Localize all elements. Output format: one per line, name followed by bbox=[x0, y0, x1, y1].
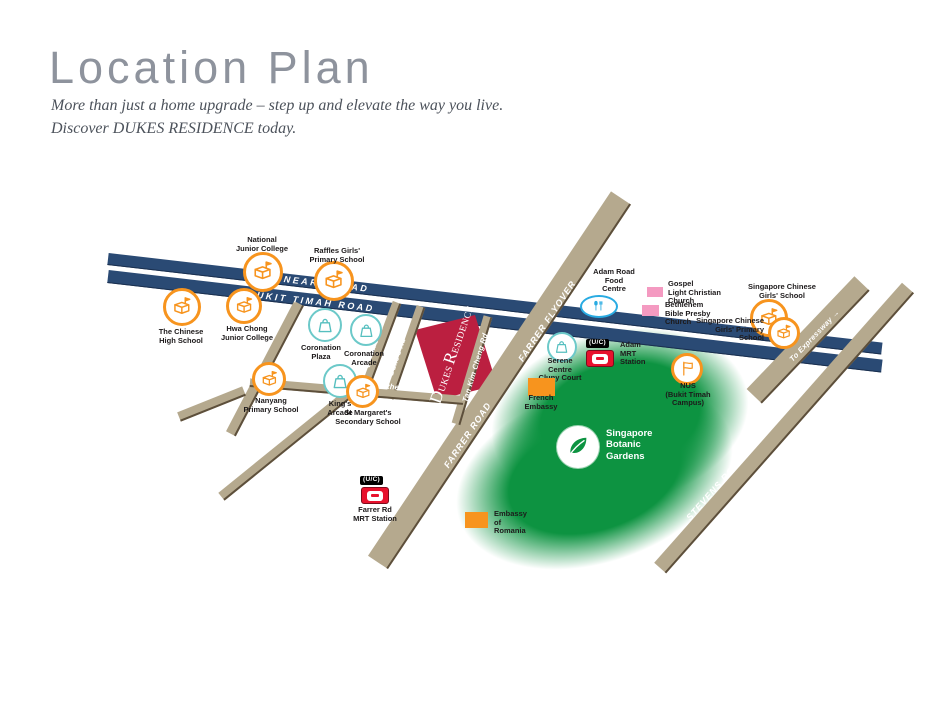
poi-label: Nanyang Primary School bbox=[221, 397, 321, 414]
location-plan-page: Location Plan More than just a home upgr… bbox=[0, 0, 943, 717]
church-icon bbox=[642, 305, 659, 316]
poi-label: Singapore Botanic Gardens bbox=[606, 428, 686, 462]
embassy-icon bbox=[465, 512, 488, 528]
leaf-icon bbox=[557, 426, 599, 468]
shopping-icon bbox=[308, 308, 342, 342]
school-icon bbox=[346, 375, 379, 408]
food-centre-icon bbox=[580, 295, 618, 318]
poi-label: Singapore Chinese Girls' School bbox=[732, 283, 832, 300]
poi-label: French Embassy bbox=[501, 394, 581, 411]
poi-label: Singapore Chinese Girls' Primary School bbox=[668, 317, 764, 343]
under-construction-badge: (U/C) bbox=[360, 476, 383, 485]
school-icon bbox=[768, 317, 800, 349]
school-icon bbox=[226, 288, 262, 324]
poi-label: Embassy of Romania bbox=[494, 510, 554, 536]
school-icon bbox=[252, 362, 286, 396]
school-icon bbox=[314, 261, 354, 301]
poi-label: Adam Road Food Centre bbox=[584, 268, 644, 294]
location-map: DUNEARN ROAD BUKIT TIMAH ROAD FARRER FLY… bbox=[0, 0, 943, 717]
poi-label: Raffles Girls' Primary School bbox=[287, 247, 387, 264]
poi-label: Hwa Chong Junior College bbox=[197, 325, 297, 342]
mrt-station-icon bbox=[361, 487, 389, 504]
school-icon bbox=[163, 288, 201, 326]
shopping-icon bbox=[350, 314, 382, 346]
poi-label: NUS (Bukit Timah Campus) bbox=[638, 382, 738, 408]
poi-label: Farrer Rd MRT Station bbox=[335, 506, 415, 523]
under-construction-badge: (U/C) bbox=[586, 339, 609, 348]
poi-label: St Margaret's Secondary School bbox=[308, 409, 428, 426]
church-icon bbox=[647, 287, 663, 297]
school-icon bbox=[243, 252, 283, 292]
